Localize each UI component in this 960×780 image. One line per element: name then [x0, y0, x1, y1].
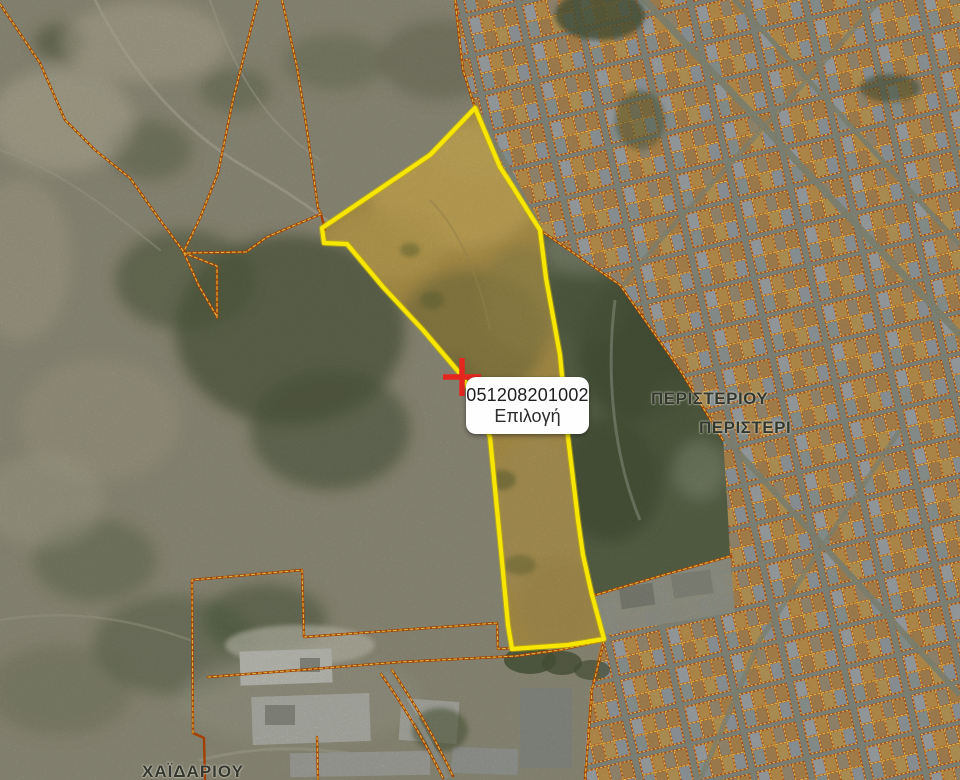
place-label-peristeriou: ΠΕΡΙΣΤΕΡΙΟΥ	[651, 389, 768, 409]
popup-select-button[interactable]: Επιλογή	[494, 405, 560, 427]
parcel-id-label: 051208201002	[466, 385, 589, 405]
place-label-chaidariou: ΧΑΪΔΑΡΙΟΥ	[142, 762, 244, 780]
place-label-peristeri: ΠΕΡΙΣΤΕΡΙ	[699, 418, 791, 438]
parcel-popup: 051208201002 Επιλογή	[466, 377, 589, 434]
map-canvas[interactable]: 051208201002 Επιλογή ΠΕΡΙΣΤΕΡΙΟΥ ΠΕΡΙΣΤΕ…	[0, 0, 960, 780]
